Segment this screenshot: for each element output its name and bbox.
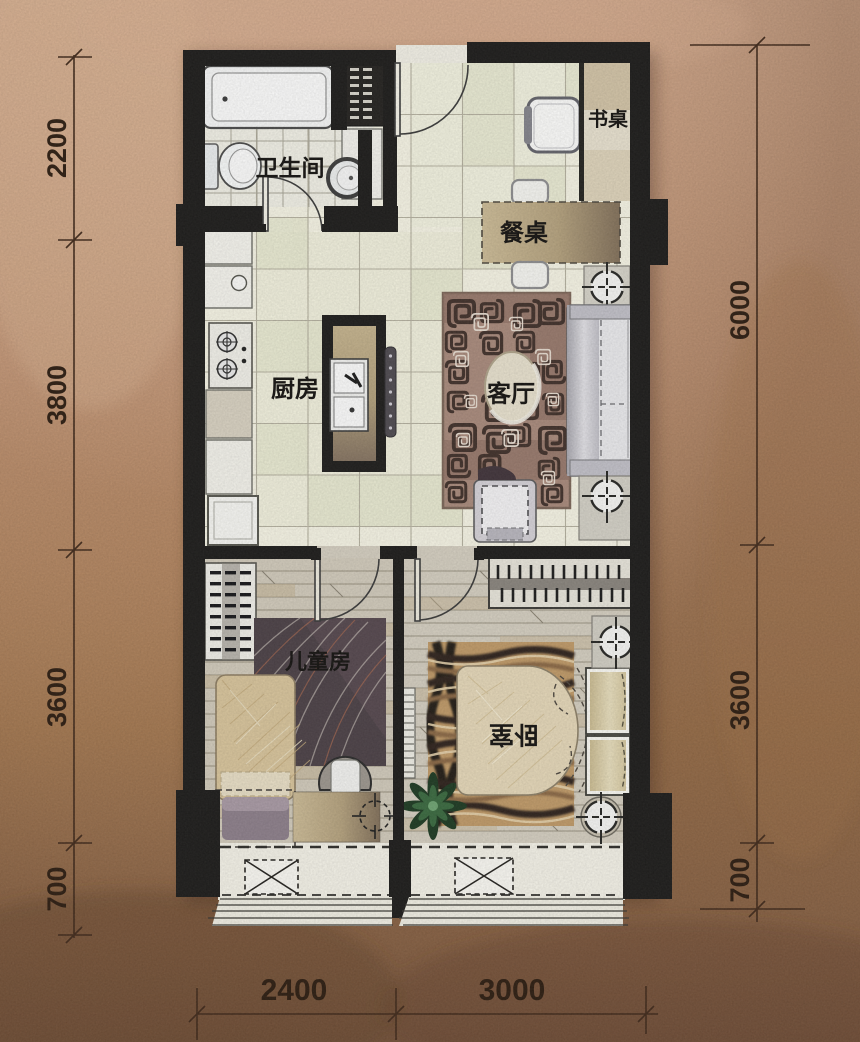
svg-text:6000: 6000 xyxy=(725,280,755,340)
svg-text:3600: 3600 xyxy=(42,667,72,727)
svg-text:700: 700 xyxy=(725,857,755,902)
svg-text:书桌: 书桌 xyxy=(588,108,629,131)
svg-text:3600: 3600 xyxy=(725,670,755,730)
svg-text:2200: 2200 xyxy=(42,118,72,178)
svg-text:厨房: 厨房 xyxy=(271,376,319,403)
svg-text:儿童房: 儿童房 xyxy=(284,649,351,674)
svg-text:卧室: 卧室 xyxy=(489,720,539,748)
svg-text:700: 700 xyxy=(42,866,72,911)
svg-text:客厅: 客厅 xyxy=(487,381,535,408)
svg-text:餐桌: 餐桌 xyxy=(500,220,549,247)
svg-text:卫生间: 卫生间 xyxy=(256,155,325,181)
svg-text:3000: 3000 xyxy=(479,974,546,1007)
svg-text:3800: 3800 xyxy=(42,365,72,425)
svg-text:2400: 2400 xyxy=(261,974,328,1007)
